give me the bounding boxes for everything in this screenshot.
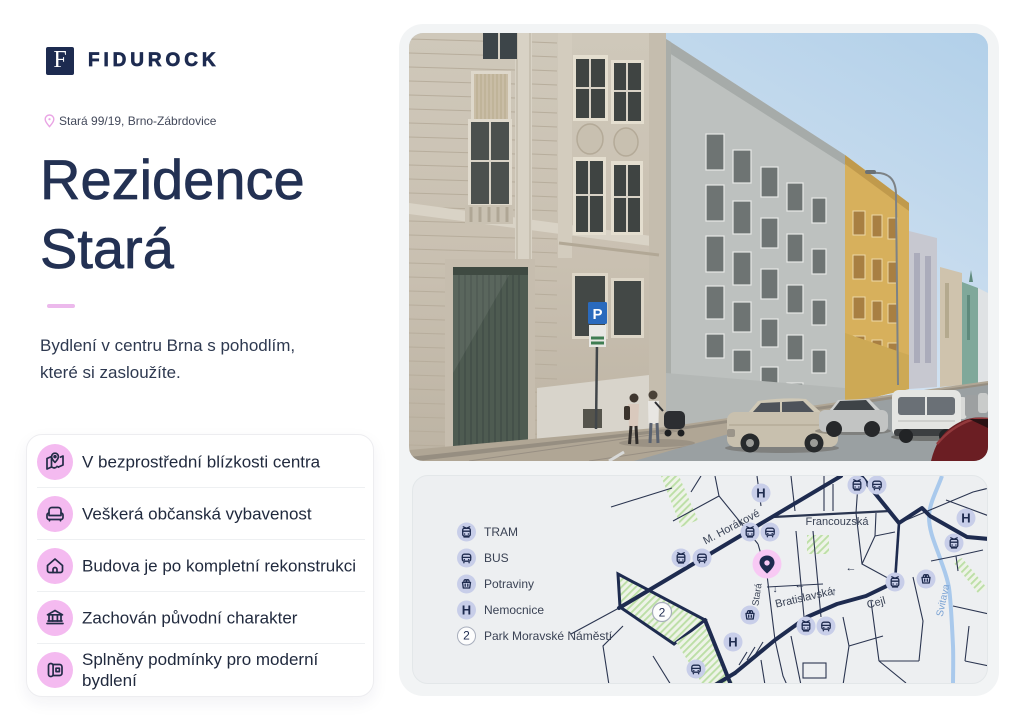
svg-text:P: P — [592, 306, 602, 323]
svg-text:H: H — [728, 635, 737, 650]
svg-text:Francouzská: Francouzská — [806, 516, 870, 528]
svg-text:↓: ↓ — [773, 584, 778, 595]
svg-text:←: ← — [846, 562, 857, 574]
svg-text:Stará: Stará — [750, 582, 764, 607]
svg-text:2: 2 — [659, 606, 666, 620]
svg-text:Cejl: Cejl — [866, 595, 887, 611]
svg-text:H: H — [961, 511, 970, 526]
svg-text:↑: ↑ — [831, 586, 837, 598]
svg-text:H: H — [756, 486, 765, 501]
svg-text:←: ← — [795, 579, 806, 591]
